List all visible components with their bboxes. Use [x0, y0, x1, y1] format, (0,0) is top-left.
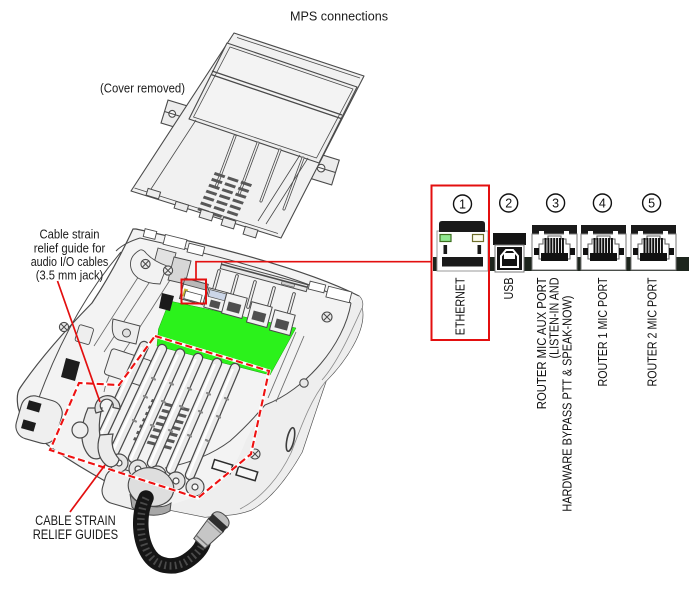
svg-text:(3.5 mm jack): (3.5 mm jack) [36, 268, 104, 283]
svg-text:ROUTER 1 MIC PORT: ROUTER 1 MIC PORT [595, 277, 610, 386]
svg-text:CABLE STRAIN: CABLE STRAIN [35, 513, 116, 528]
svg-text:ROUTER 2 MIC PORT: ROUTER 2 MIC PORT [644, 277, 659, 386]
svg-text:1: 1 [459, 198, 466, 212]
svg-text:HARDWARE BYPASS PTT & SPEAK-N: HARDWARE BYPASS PTT & SPEAK-NOW) [560, 296, 575, 512]
svg-text:3: 3 [552, 197, 559, 211]
svg-text:5: 5 [648, 197, 655, 211]
svg-text:2: 2 [505, 197, 512, 211]
svg-text:USB: USB [501, 278, 516, 300]
svg-text:RELIEF GUIDES: RELIEF GUIDES [33, 527, 118, 542]
svg-text:(Cover removed): (Cover removed) [100, 81, 185, 96]
svg-text:MPS connections: MPS connections [290, 9, 388, 24]
svg-text:4: 4 [599, 197, 606, 211]
svg-text:ETHERNET: ETHERNET [453, 277, 468, 335]
